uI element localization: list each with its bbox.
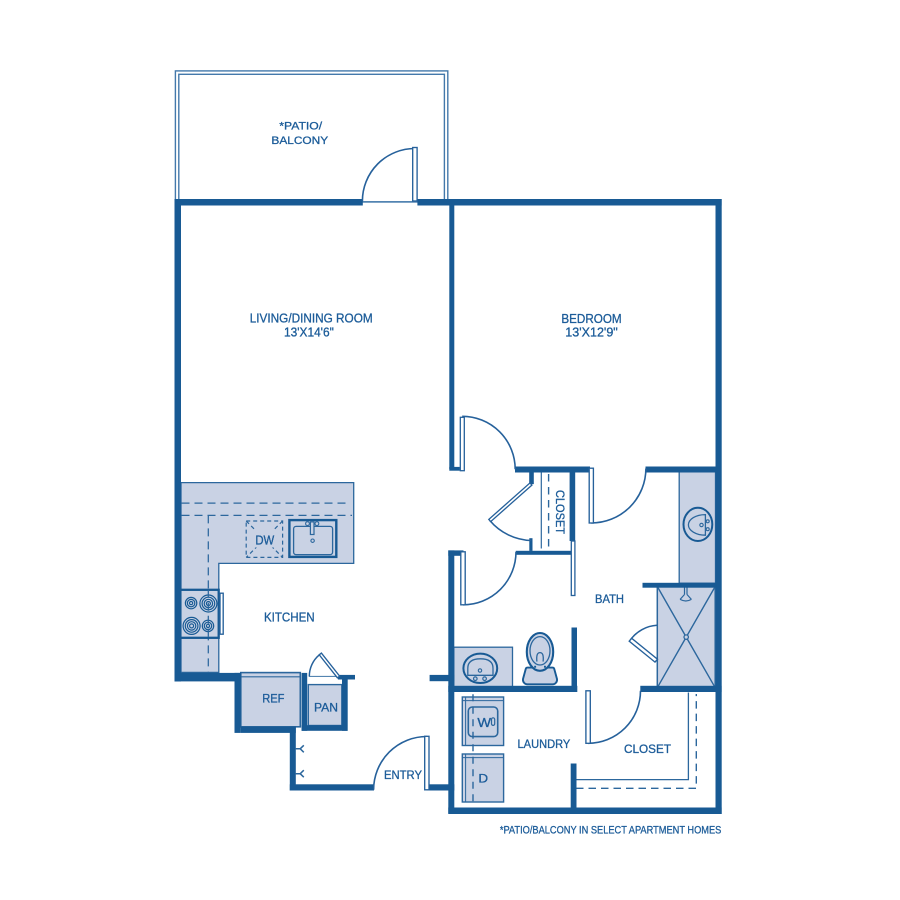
svg-text:PAN: PAN <box>314 701 338 715</box>
svg-text:13'X14'6": 13'X14'6" <box>284 326 334 340</box>
svg-text:13'X12'9": 13'X12'9" <box>565 326 618 340</box>
svg-text:D: D <box>478 772 488 786</box>
svg-text:CLOSET: CLOSET <box>553 490 566 534</box>
svg-text:*PATIO/: *PATIO/ <box>279 120 323 132</box>
svg-text:*PATIO/BALCONY IN SELECT APART: *PATIO/BALCONY IN SELECT APARTMENT HOMES <box>500 824 722 836</box>
svg-text:BALCONY: BALCONY <box>271 135 329 147</box>
svg-text:REF: REF <box>262 692 284 706</box>
svg-text:W: W <box>477 716 491 730</box>
svg-text:LIVING/DINING ROOM: LIVING/DINING ROOM <box>250 311 373 326</box>
svg-text:ENTRY: ENTRY <box>384 768 422 782</box>
svg-text:BATH: BATH <box>595 592 624 606</box>
svg-text:CLOSET: CLOSET <box>624 742 672 756</box>
svg-text:KITCHEN: KITCHEN <box>264 610 315 624</box>
svg-text:DW: DW <box>255 534 274 548</box>
svg-text:LAUNDRY: LAUNDRY <box>518 737 571 751</box>
svg-text:BEDROOM: BEDROOM <box>561 311 621 326</box>
